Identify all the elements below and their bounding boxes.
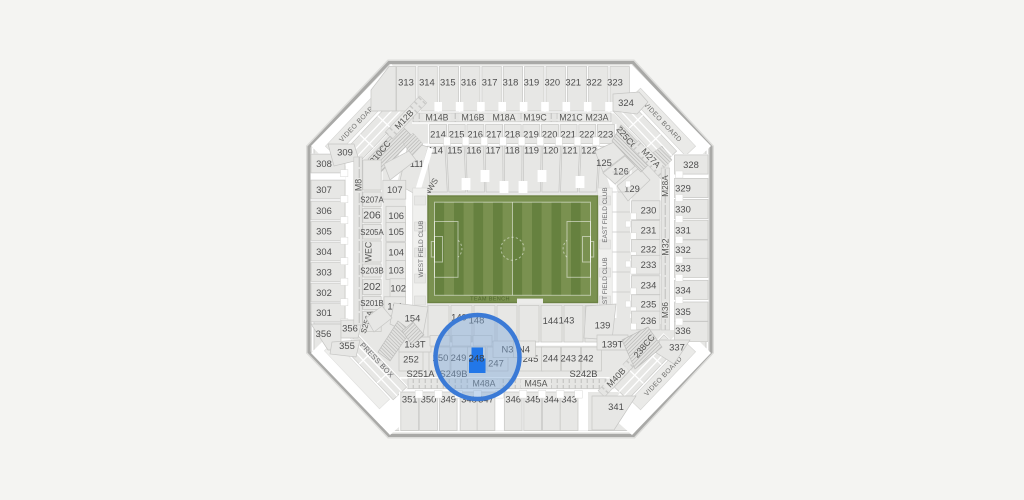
svg-text:S203B: S203B [360, 267, 383, 276]
svg-text:322: 322 [586, 77, 602, 88]
svg-text:102: 102 [390, 283, 406, 294]
svg-text:337: 337 [669, 342, 685, 353]
svg-text:116: 116 [466, 144, 481, 155]
svg-text:M19C: M19C [523, 112, 547, 122]
svg-text:305: 305 [316, 226, 332, 237]
svg-text:217: 217 [486, 129, 502, 140]
svg-text:S242B: S242B [570, 369, 598, 379]
svg-text:125: 125 [596, 157, 612, 168]
svg-text:306: 306 [316, 205, 332, 216]
svg-text:WEST FIELD CLUB: WEST FIELD CLUB [418, 220, 425, 277]
svg-text:319: 319 [524, 77, 540, 88]
svg-text:206: 206 [363, 210, 381, 222]
svg-text:356: 356 [316, 328, 332, 339]
svg-text:329: 329 [675, 183, 691, 194]
svg-text:218: 218 [505, 129, 521, 140]
svg-text:243: 243 [560, 353, 576, 364]
svg-text:349: 349 [440, 394, 456, 405]
svg-text:308: 308 [316, 158, 332, 169]
svg-text:323: 323 [607, 77, 623, 88]
svg-text:223: 223 [598, 129, 614, 140]
svg-text:M18A: M18A [493, 112, 516, 122]
svg-text:117: 117 [486, 144, 501, 155]
svg-text:234: 234 [641, 280, 657, 291]
svg-text:317: 317 [482, 77, 498, 88]
svg-text:302: 302 [316, 287, 332, 298]
svg-text:231: 231 [641, 224, 657, 235]
svg-text:104: 104 [388, 246, 404, 257]
svg-text:230: 230 [641, 205, 657, 216]
svg-text:318: 318 [503, 77, 519, 88]
svg-text:321: 321 [565, 77, 581, 88]
svg-text:TEAM BENCH: TEAM BENCH [470, 297, 510, 303]
svg-text:248: 248 [469, 353, 485, 364]
svg-text:219: 219 [523, 129, 539, 140]
svg-text:221: 221 [560, 129, 576, 140]
svg-text:WEC: WEC [364, 241, 374, 262]
svg-text:335: 335 [675, 306, 691, 317]
svg-text:220: 220 [542, 129, 558, 140]
svg-text:103: 103 [388, 264, 404, 275]
svg-text:244: 244 [543, 353, 559, 364]
svg-text:122: 122 [581, 144, 597, 155]
svg-text:139T: 139T [602, 340, 624, 351]
svg-text:119: 119 [524, 144, 539, 155]
svg-text:107: 107 [387, 184, 403, 195]
svg-text:309: 309 [337, 147, 353, 158]
svg-text:315: 315 [440, 77, 456, 88]
svg-text:232: 232 [641, 243, 657, 254]
svg-text:EAST FIELD CLUB: EAST FIELD CLUB [602, 187, 609, 242]
svg-text:331: 331 [675, 224, 691, 235]
svg-text:330: 330 [675, 204, 691, 215]
svg-text:M36: M36 [661, 302, 670, 318]
svg-text:M32: M32 [660, 238, 670, 255]
svg-text:303: 303 [316, 267, 332, 278]
svg-text:242: 242 [578, 353, 594, 364]
svg-text:115: 115 [447, 144, 462, 155]
svg-text:120: 120 [543, 144, 559, 155]
svg-text:M21C: M21C [559, 112, 583, 122]
svg-text:M28A: M28A [661, 175, 670, 197]
svg-text:316: 316 [461, 77, 477, 88]
svg-text:143: 143 [559, 315, 575, 326]
svg-text:333: 333 [675, 262, 691, 273]
svg-text:346: 346 [505, 394, 521, 405]
svg-text:355: 355 [339, 340, 355, 351]
svg-text:233: 233 [641, 259, 657, 270]
svg-text:M45A: M45A [525, 378, 548, 388]
svg-text:139: 139 [595, 320, 611, 331]
svg-text:202: 202 [363, 281, 381, 293]
svg-text:S207A: S207A [360, 195, 384, 204]
svg-text:121: 121 [562, 144, 578, 155]
svg-text:320: 320 [544, 77, 560, 88]
svg-text:106: 106 [388, 210, 404, 221]
svg-text:S251A: S251A [407, 369, 436, 379]
svg-text:301: 301 [316, 307, 332, 318]
svg-text:334: 334 [675, 284, 691, 295]
svg-text:222: 222 [579, 129, 595, 140]
svg-text:304: 304 [316, 246, 332, 257]
svg-text:118: 118 [505, 144, 520, 155]
svg-text:154: 154 [405, 313, 421, 324]
svg-text:M8: M8 [353, 179, 363, 191]
svg-text:M14B: M14B [426, 112, 449, 122]
svg-text:328: 328 [683, 159, 699, 170]
svg-text:336: 336 [675, 325, 691, 336]
svg-text:235: 235 [641, 299, 657, 310]
svg-text:144: 144 [543, 315, 559, 326]
svg-text:M16B: M16B [462, 112, 485, 122]
svg-text:S205A: S205A [360, 228, 384, 237]
svg-text:252: 252 [403, 354, 419, 365]
svg-text:236: 236 [641, 315, 657, 326]
svg-text:324: 324 [618, 97, 634, 108]
svg-text:126: 126 [613, 166, 629, 177]
svg-text:307: 307 [316, 184, 332, 195]
svg-text:105: 105 [388, 226, 404, 237]
svg-text:332: 332 [675, 244, 691, 255]
svg-text:M23A: M23A [586, 112, 609, 122]
svg-text:341: 341 [608, 401, 624, 412]
svg-text:313: 313 [398, 77, 414, 88]
svg-text:S201B: S201B [360, 299, 383, 308]
svg-text:314: 314 [419, 77, 435, 88]
